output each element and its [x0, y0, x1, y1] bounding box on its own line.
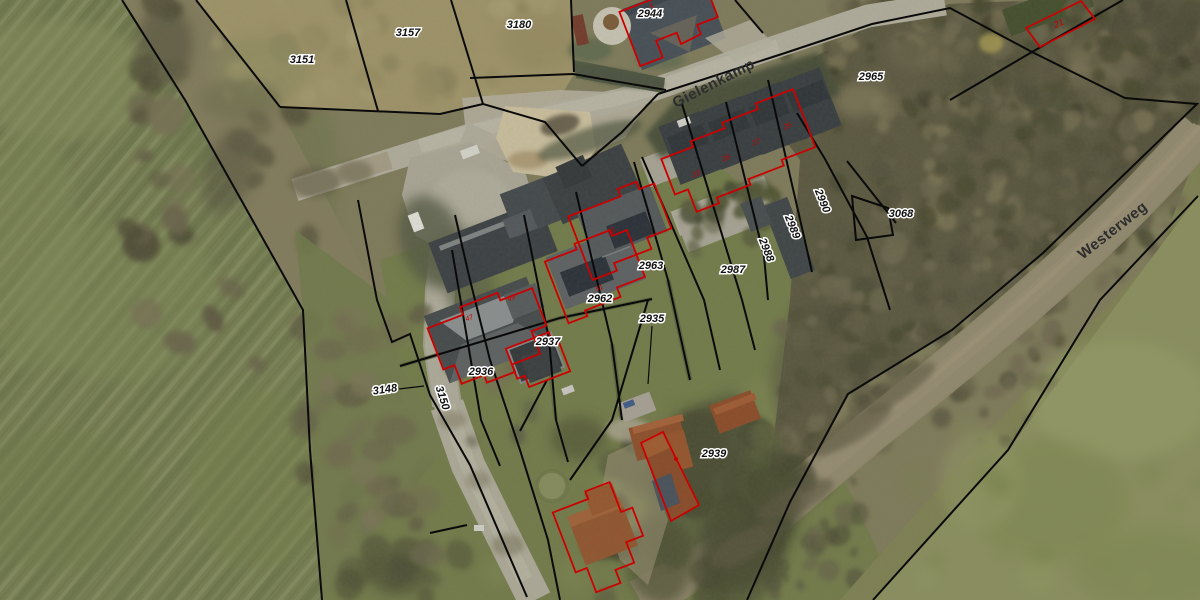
svg-text:2965: 2965 [858, 71, 884, 83]
svg-text:2963: 2963 [638, 260, 663, 272]
svg-text:3068: 3068 [889, 208, 914, 220]
svg-text:3180: 3180 [507, 19, 532, 31]
svg-text:2939: 2939 [701, 448, 727, 460]
svg-text:2944: 2944 [637, 8, 662, 20]
svg-text:2962: 2962 [587, 293, 612, 305]
svg-text:3157: 3157 [396, 27, 421, 39]
svg-text:2987: 2987 [720, 264, 746, 276]
svg-text:2935: 2935 [639, 313, 665, 325]
svg-text:2936: 2936 [468, 366, 494, 378]
svg-text:2937: 2937 [535, 336, 561, 348]
svg-text:3151: 3151 [290, 54, 314, 66]
